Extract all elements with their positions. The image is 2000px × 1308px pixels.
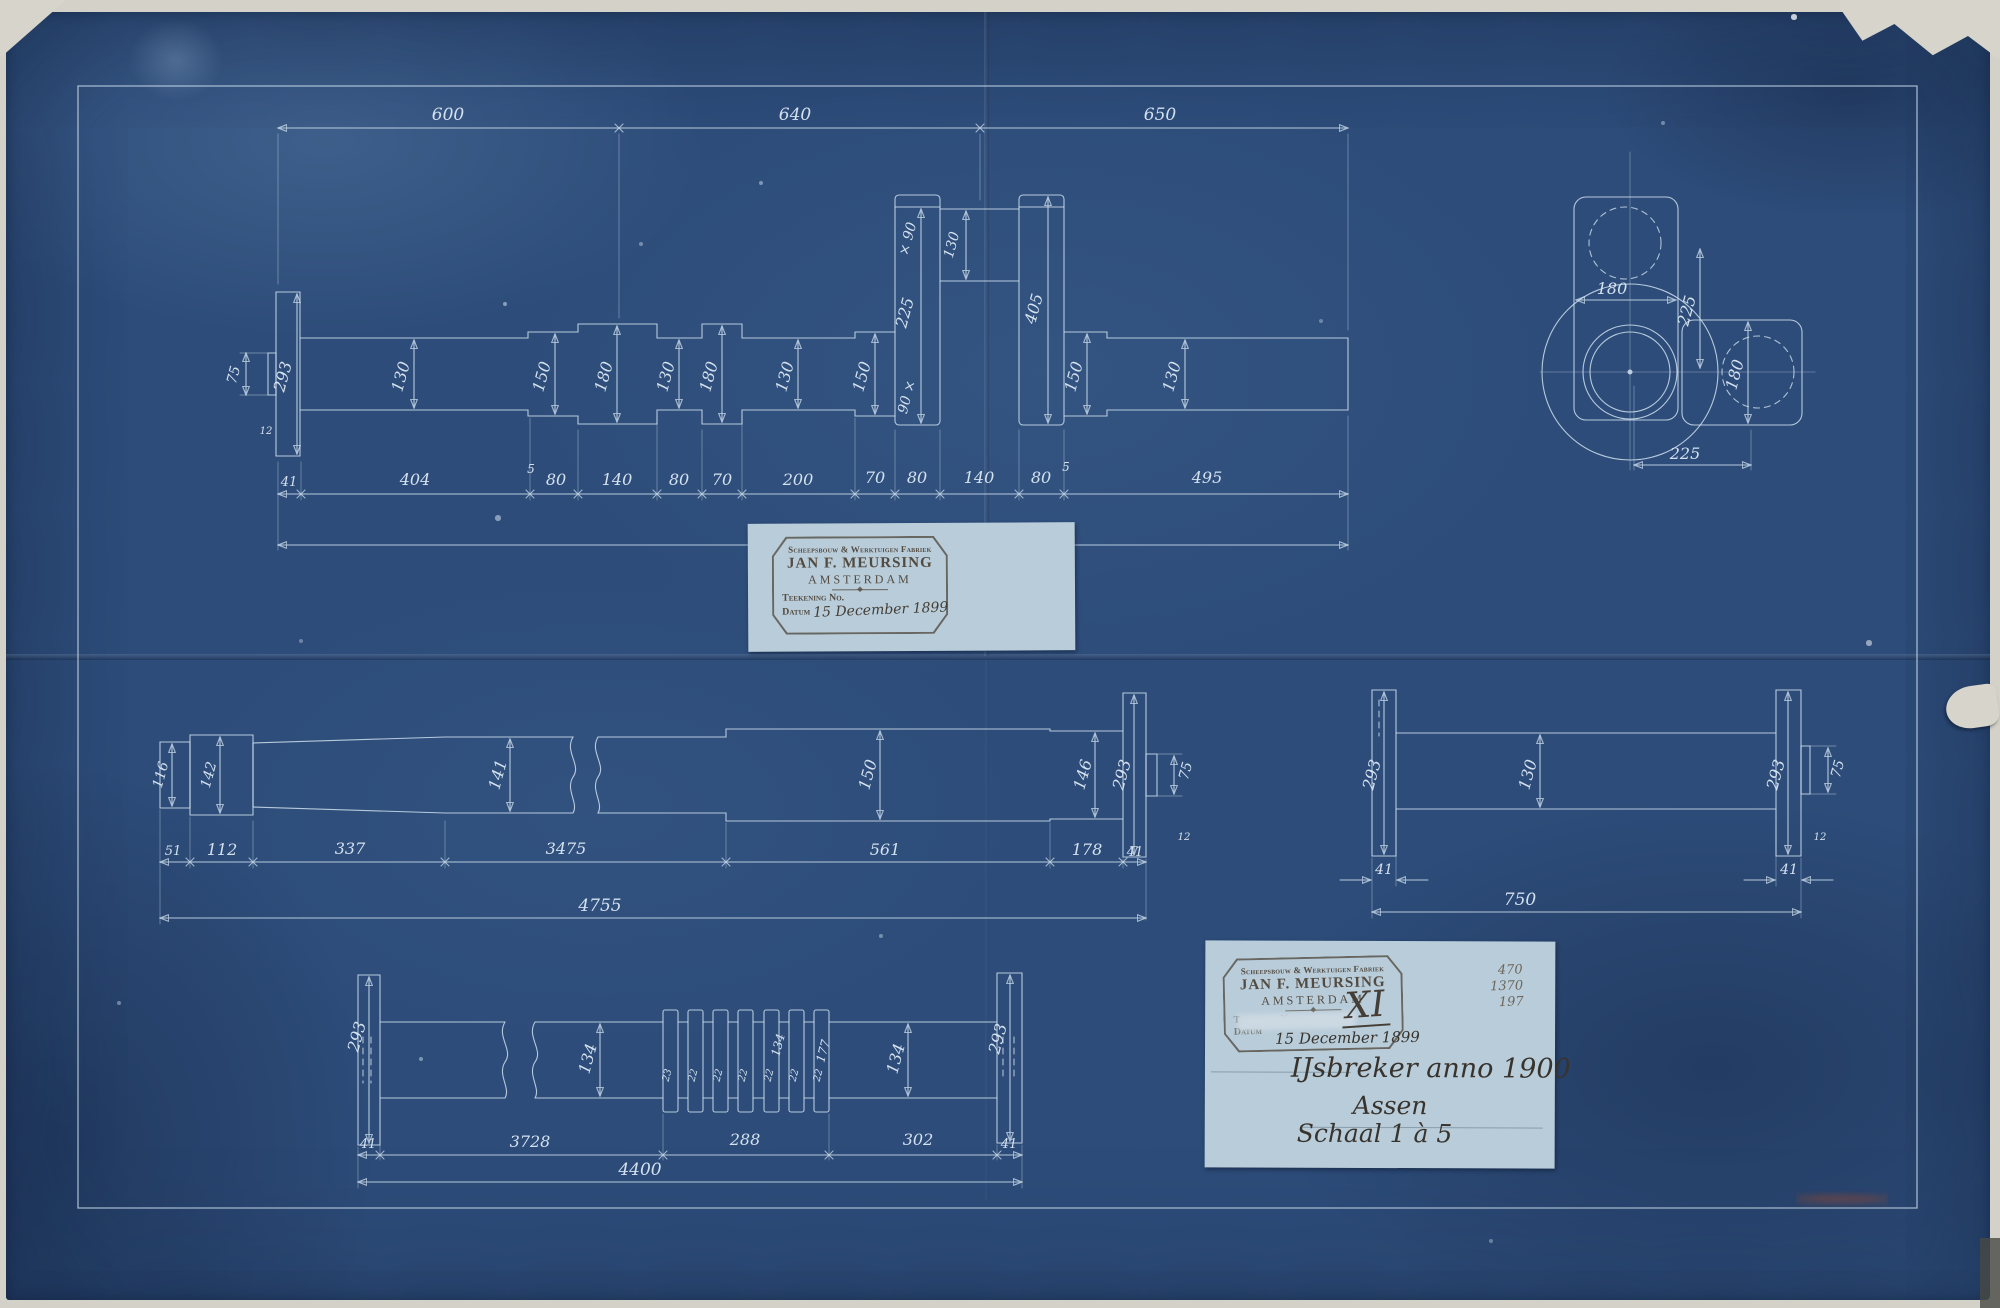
shaft-left [380,1022,663,1098]
ring-dim-label: 22 [711,1068,725,1084]
dim-label: 225 [1669,444,1701,463]
dim-label: 495 [1191,468,1223,487]
dia-label: 293 [1108,757,1135,792]
dim-label: 5 [527,462,535,476]
dia-label: 180 [591,359,617,393]
dia-label: 141 [485,757,511,791]
total-dim-label: 4755 [577,896,621,916]
web-vertical [1574,197,1678,420]
dim-label: 600 [432,105,465,125]
dim-label: 51 [165,844,182,859]
dim-label: 140 [964,468,995,487]
ring-dim-label: 22 [736,1068,750,1084]
dia-label: 12 [260,426,273,437]
title-scale: Schaal 1 à 5 [1297,1119,1453,1149]
dim-label: 561 [870,840,901,859]
dia-label: 150 [855,757,881,791]
intermediate-shaft-drawing: 51 112 337 3475 561 178 41 4755 116 142 … [150,693,1196,924]
dim-label: 80 [1031,468,1051,487]
crank-pin-lines [895,207,1064,281]
corner-notes: 470 1370 197 [1456,962,1523,1012]
dim-label: 80 [669,470,689,489]
dim-label: 90 × [895,378,919,415]
dia-label: 75 [1828,758,1848,779]
grooved-shaft-drawing: 23 22 22 22 22 22 22 134 177 293 134 134… [343,973,1022,1188]
faint-archive-mark [1796,1190,1888,1208]
dia-label: 180 [696,359,722,393]
title-date: 15 December 1899 [1275,1028,1420,1048]
shaft-between-rings [678,1022,997,1098]
dim-label: 70 [712,470,732,489]
dia-label: 134 [883,1041,909,1075]
dim-label: 404 [399,470,431,489]
dim-label: 180 [1597,279,1628,298]
crankshaft-drawing: 600 640 650 41 404 5 80 140 80 70 200 70… [224,105,1348,550]
dia-label: 142 [198,760,220,790]
dia-label: 130 [772,359,798,393]
stamp-label-middle: Scheepsbouw & Werktuigen Fabriek JAN F. … [748,522,1076,652]
dia-label: 130 [388,359,414,393]
dim-label: 225 [1673,293,1700,328]
dia-label: 130 [653,359,679,393]
dim-label: 41 [359,1137,377,1152]
maker-stamp: Scheepsbouw & Werktuigen Fabriek JAN F. … [772,536,949,635]
shaft-collar [190,735,253,815]
shaft-stub [1146,754,1157,796]
title-subject: IJsbreker anno 1900 [1291,1053,1571,1085]
crankshaft-end-view: 180 180 225 225 [1540,152,1815,470]
whiteout-smudge [1237,1012,1355,1031]
dia-label: 293 [1762,757,1789,792]
stamp-date-row: Datum 15 December 1899 [782,604,948,619]
dim-label: 3728 [510,1132,551,1151]
dark-corner-bottom-right [1980,1238,2000,1308]
dim-label: 640 [779,105,812,125]
stamp-city: AMSTERDAM [772,572,948,588]
dia-label: 116 [150,760,172,790]
title-block-label: Scheepsbouw & Werktuigen Fabriek JAN F. … [1205,940,1556,1168]
ring-dim-label: 22 [787,1068,801,1084]
stamp-date-value: 15 December 1899 [813,601,949,618]
shaft-body [1396,733,1776,809]
stamp-company: JAN F. MEURSING [772,555,948,573]
dia-label: 293 [984,1021,1011,1056]
stamp-date-label: Datum [782,607,810,618]
crankshaft-profile [300,324,1348,424]
dia-label: 293 [343,1019,370,1054]
dia-label: 150 [529,359,555,393]
dim-label: 288 [729,1130,761,1149]
dim-label: 140 [602,470,633,489]
pin-circle-top [1589,207,1661,279]
dim-label: 112 [207,840,238,859]
ring-dim-label: 23 [660,1068,674,1084]
title-part: Assen [1353,1091,1428,1120]
dim-label: 80 [907,468,927,487]
dim-label: 5 [1062,460,1070,474]
dim-label: 200 [782,470,814,489]
coupling-shaft-drawing: 293 130 293 75 12 41 41 750 [1340,690,1848,918]
dia-label: 293 [269,359,296,394]
dia-label: 75 [224,364,244,385]
dia-label: 293 [1358,757,1385,792]
taper-section [253,737,576,813]
dim-label: 41 [1779,862,1798,878]
dim-label: 650 [1144,105,1177,125]
total-dim-label: 750 [1504,890,1537,910]
dia-label: 134 [768,1032,787,1058]
dia-label: 75 [1176,760,1196,781]
dia-label: 12 [1178,832,1191,843]
dia-label: 12 [1814,832,1827,843]
dim-label: 3475 [546,839,587,858]
drawing-number: XI [1340,985,1390,1028]
dim-label: × 90 [896,220,920,257]
dim-label: 178 [1072,840,1103,859]
dia-label: 130 [1515,757,1541,791]
blueprint-linework: 600 640 650 41 404 5 80 140 80 70 200 70… [0,0,2000,1308]
dim-label: 337 [335,839,366,858]
stub [1801,746,1810,794]
ring-dim-label: 22 [686,1068,700,1084]
stamp-factory-line: Scheepsbouw & Werktuigen Fabriek [772,544,948,555]
dim-label: 180 [1722,357,1748,391]
dia-label: 130 [1159,359,1185,393]
total-dim-label: 4400 [617,1160,661,1180]
dim-label: 41 [1374,862,1393,878]
dia-label: 146 [1070,757,1096,791]
dia-label: 150 [849,359,875,393]
dim-label: 70 [865,468,885,487]
dia-label: 130 [941,230,963,260]
stamp-divider [1285,1009,1341,1011]
dim-label: 41 [1000,1137,1018,1152]
dia-label: 177 [813,1038,833,1064]
ring-dim-label: 22 [762,1068,776,1084]
dim-label: 80 [546,470,566,489]
corner-note: 197 [1458,994,1524,1012]
ring-dim-label: 22 [811,1068,825,1084]
dim-label: 302 [903,1130,934,1149]
blueprint-page: 600 640 650 41 404 5 80 140 80 70 200 70… [0,0,2000,1308]
dim-label: 41 [280,475,298,490]
stamp-divider [832,589,888,590]
dim-label: 405 [1020,291,1047,326]
dia-label: 134 [575,1041,601,1075]
